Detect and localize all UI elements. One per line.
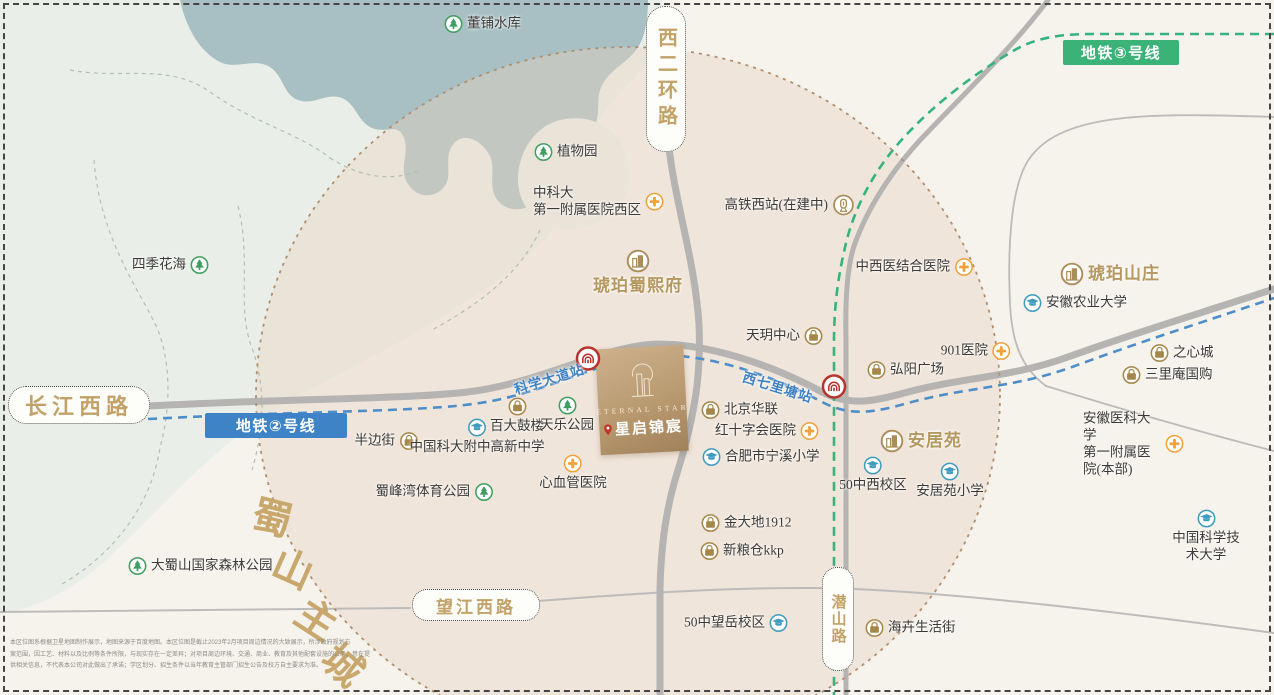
- poi-shopping: 三里庵国购: [1122, 366, 1213, 385]
- poi-hospital: 心血管医院: [539, 454, 607, 492]
- poi-school: 50中望岳校区: [684, 614, 788, 633]
- school-icon: [702, 448, 721, 467]
- school-icon: [864, 456, 883, 475]
- poi-label: 之心城: [1173, 345, 1214, 362]
- poi-label: 安居苑: [908, 430, 962, 451]
- poi-label: 新粮仓kkp: [723, 543, 784, 560]
- residence-icon: [626, 249, 650, 273]
- disclaimer-line: 本区位图系根据卫星地图制作展示，地图来源于百度地图。本区位图是截止2023年2月…: [10, 638, 402, 650]
- poi-shopping: 新粮仓kkp: [700, 542, 784, 561]
- park-icon: [190, 256, 209, 275]
- poi-park: 董铺水库: [444, 15, 521, 34]
- poi-hospital: 901医院: [941, 342, 1011, 361]
- shopping-icon: [804, 327, 823, 346]
- school-icon: [1197, 509, 1216, 528]
- shopping-icon: [700, 542, 719, 561]
- poi-label: 四季花海: [132, 257, 186, 274]
- poi-shopping: 之心城: [1150, 344, 1214, 363]
- project-block: ETERNAL STAR 星启锦宸: [595, 345, 688, 455]
- poi-label: 植物园: [557, 144, 598, 161]
- poi-label: 蜀峰湾体育公园: [376, 484, 471, 501]
- residence-icon: [1060, 262, 1084, 286]
- poi-shopping: 天玥中心: [746, 327, 823, 346]
- poi-park: 大蜀山国家森林公园: [128, 557, 273, 576]
- hospital-icon: [954, 258, 973, 277]
- shopping-icon: [701, 514, 720, 533]
- poi-label: 海卉生活街: [888, 620, 956, 637]
- metro-line-3-badge: 地铁③号线: [1063, 40, 1179, 65]
- project-name: 星启锦宸: [603, 415, 683, 440]
- shopping-icon: [1122, 366, 1141, 385]
- park-icon: [128, 557, 147, 576]
- park-icon: [534, 143, 553, 162]
- poi-school: 安居苑小学: [916, 462, 984, 500]
- school-icon: [1023, 294, 1042, 313]
- shopping-icon: [508, 397, 527, 416]
- metro-station-icon: [821, 373, 848, 405]
- poi-residence: 安居苑: [880, 429, 962, 453]
- location-pin-icon: [604, 423, 614, 435]
- poi-park: 植物园: [534, 143, 598, 162]
- disclaimer-line: 供相关信息，不代表本公司对此做出了承诺；学区划分、招生条件以当年教育主管部门招生…: [10, 661, 402, 673]
- hospital-icon: [1165, 435, 1184, 454]
- poi-park: 天乐公园: [540, 396, 594, 434]
- poi-label: 安徽农业大学: [1046, 295, 1127, 312]
- poi-shopping: 北京华联: [701, 401, 778, 420]
- poi-shopping: 弘阳广场: [867, 361, 944, 380]
- poi-label: 高铁西站(在建中): [725, 197, 829, 214]
- poi-label: 董铺水库: [467, 16, 521, 33]
- poi-school: 中国科学技术大学: [1172, 509, 1240, 564]
- rail-icon: [832, 194, 854, 216]
- poi-rail: 高铁西站(在建中): [725, 194, 855, 216]
- poi-label: 安居苑小学: [916, 483, 984, 500]
- metro-line-2-badge: 地铁②号线: [205, 413, 347, 438]
- project-location-map: 蜀山主城 ETERNAL STAR 星启锦宸 西二环路长江西路望江西路潜山路 地…: [0, 0, 1274, 695]
- school-icon: [468, 418, 487, 437]
- map-disclaimer: 本区位图系根据卫星地图制作展示，地图来源于百度地图。本区位图是截止2023年2月…: [10, 638, 402, 673]
- road-label-wangjiang-west-road: 望江西路: [412, 589, 540, 621]
- poi-hospital: 红十字会医院: [715, 422, 819, 441]
- road-label-changjiang-west-road: 长江西路: [8, 386, 150, 424]
- poi-label: 三里庵国购: [1145, 367, 1213, 384]
- poi-label: 合肥市宁溪小学: [725, 449, 820, 466]
- road-label-xierhuan-road: 西二环路: [646, 6, 686, 152]
- poi-label: 中科大 第一附属医院西区: [533, 185, 641, 219]
- poi-shopping: 半边街: [355, 432, 419, 451]
- poi-park: 蜀峰湾体育公园: [376, 483, 494, 502]
- poi-label: 弘阳广场: [890, 362, 944, 379]
- poi-label: 琥珀山庄: [1088, 263, 1160, 284]
- poi-label: 红十字会医院: [715, 423, 796, 440]
- residence-icon: [880, 429, 904, 453]
- poi-label: 安徽医科大学 第一附属医院(本部): [1083, 410, 1161, 478]
- park-icon: [474, 483, 493, 502]
- hospital-icon: [800, 422, 819, 441]
- poi-school: 中国科大附中高新中学: [410, 418, 545, 456]
- poi-hospital: 安徽医科大学 第一附属医院(本部): [1083, 410, 1184, 478]
- poi-label: 北京华联: [724, 402, 778, 419]
- park-icon: [444, 15, 463, 34]
- disclaimer-line: 案范围，因工艺、材料以及比例等条件所限，与现实存在一定差异；对项目周边环境、交通…: [10, 650, 402, 662]
- shopping-icon: [867, 361, 886, 380]
- poi-school: 50中西校区: [839, 456, 907, 494]
- poi-label: 中西医结合医院: [856, 259, 951, 276]
- project-logo-icon: [617, 361, 665, 403]
- poi-residence: 琥珀山庄: [1060, 262, 1160, 286]
- poi-hospital: 中西医结合医院: [856, 258, 974, 277]
- poi-label: 半边街: [355, 433, 396, 450]
- poi-label: 天乐公园: [540, 417, 594, 434]
- poi-label: 50中西校区: [839, 477, 907, 494]
- hospital-icon: [564, 454, 583, 473]
- hospital-icon: [992, 342, 1011, 361]
- poi-label: 琥珀蜀熙府: [593, 275, 683, 296]
- hospital-icon: [645, 193, 664, 212]
- shopping-icon: [865, 619, 884, 638]
- school-icon: [941, 462, 960, 481]
- poi-residence: 琥珀蜀熙府: [593, 249, 683, 296]
- poi-hospital: 中科大 第一附属医院西区: [533, 185, 664, 219]
- poi-park: 四季花海: [132, 256, 209, 275]
- poi-label: 心血管医院: [539, 475, 607, 492]
- park-icon: [558, 396, 577, 415]
- school-icon: [769, 614, 788, 633]
- poi-shopping: 海卉生活街: [865, 619, 956, 638]
- poi-label: 中国科学技术大学: [1172, 530, 1240, 564]
- poi-label: 天玥中心: [746, 328, 800, 345]
- poi-label: 50中望岳校区: [684, 615, 765, 632]
- road-label-qianshan-road: 潜山路: [822, 567, 854, 671]
- poi-label: 金大地1912: [724, 515, 792, 532]
- poi-shopping: 金大地1912: [701, 514, 792, 533]
- poi-label: 中国科大附中高新中学: [410, 439, 545, 456]
- poi-label: 901医院: [941, 343, 988, 360]
- poi-school: 合肥市宁溪小学: [702, 448, 820, 467]
- shopping-icon: [701, 401, 720, 420]
- poi-label: 大蜀山国家森林公园: [151, 558, 273, 575]
- poi-school: 安徽农业大学: [1023, 294, 1127, 313]
- shopping-icon: [1150, 344, 1169, 363]
